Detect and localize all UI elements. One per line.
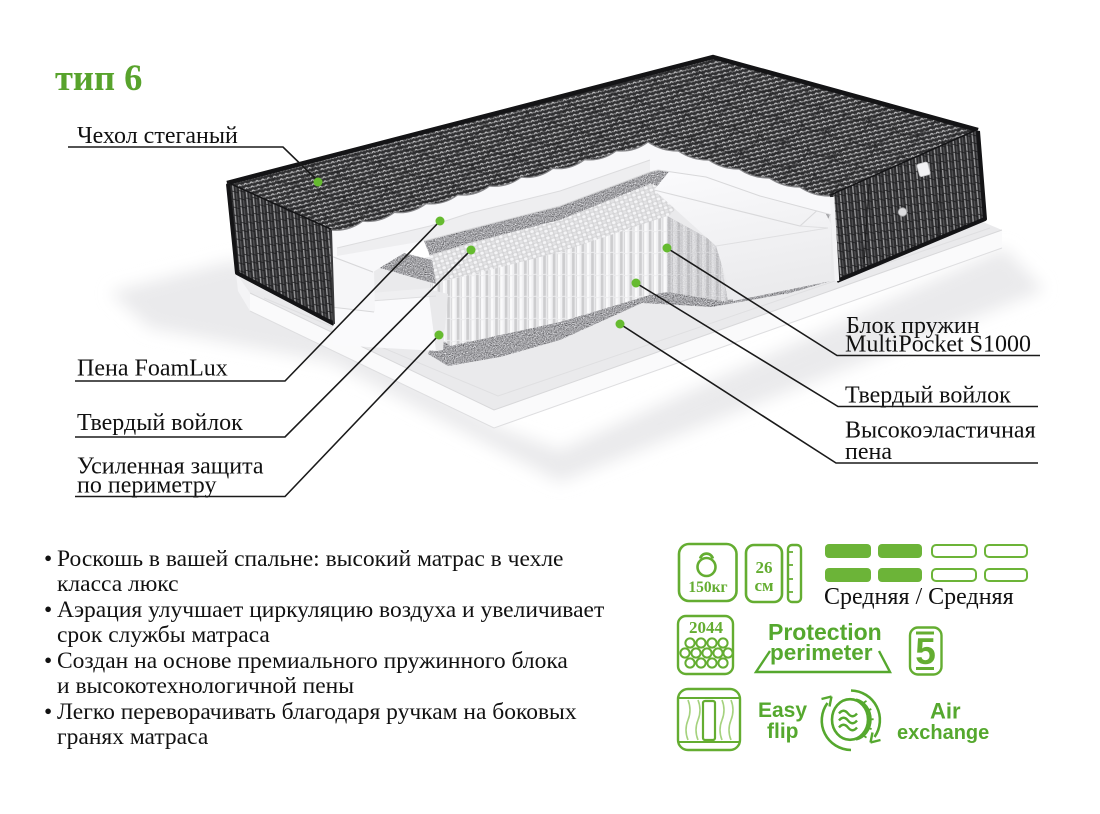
- svg-text:perimeter: perimeter: [770, 640, 873, 665]
- svg-text:Средняя / Средняя: Средняя / Средняя: [824, 584, 1014, 610]
- svg-text:•: •: [44, 546, 52, 572]
- svg-text:срок службы матраса: срок службы матраса: [57, 622, 270, 648]
- svg-text:по периметру: по периметру: [77, 473, 217, 499]
- svg-text:Твердый войлок: Твердый войлок: [845, 383, 1011, 409]
- svg-text:Easy: Easy: [758, 699, 807, 722]
- svg-text:пена: пена: [845, 439, 892, 465]
- svg-text:2044: 2044: [689, 618, 724, 637]
- svg-text:гранях матраса: гранях матраса: [57, 724, 209, 750]
- svg-text:тип 6: тип 6: [55, 57, 142, 98]
- svg-text:Аэрация улучшает циркуляцию во: Аэрация улучшает циркуляцию воздуха и ув…: [57, 597, 604, 623]
- svg-text:•: •: [44, 699, 52, 725]
- svg-text:Роскошь в вашей спальне: высок: Роскошь в вашей спальне: высокий матрас …: [57, 546, 563, 572]
- svg-text:см: см: [754, 576, 774, 595]
- svg-text:flip: flip: [767, 720, 799, 743]
- svg-text:150кг: 150кг: [688, 579, 727, 596]
- svg-text:Пена FoamLux: Пена FoamLux: [77, 356, 228, 382]
- svg-text:exchange: exchange: [897, 722, 989, 744]
- svg-text:Чехол стеганый: Чехол стеганый: [77, 123, 238, 149]
- svg-text:5: 5: [915, 631, 936, 672]
- svg-text:•: •: [44, 648, 52, 674]
- svg-text:Твердый войлок: Твердый войлок: [77, 410, 243, 436]
- svg-text:Air: Air: [930, 699, 961, 724]
- svg-text:Легко переворачивать благодаря: Легко переворачивать благодаря ручкам на…: [57, 699, 577, 725]
- svg-text:Создан на основе премиального: Создан на основе премиального пружинного…: [57, 648, 568, 674]
- svg-text:•: •: [44, 597, 52, 623]
- svg-text:класса люкс: класса люкс: [57, 571, 179, 597]
- svg-text:26: 26: [756, 558, 773, 577]
- svg-text:MultiPocket S1000: MultiPocket S1000: [845, 332, 1031, 358]
- svg-text:и высокотехнологичной пены: и высокотехнологичной пены: [57, 673, 354, 699]
